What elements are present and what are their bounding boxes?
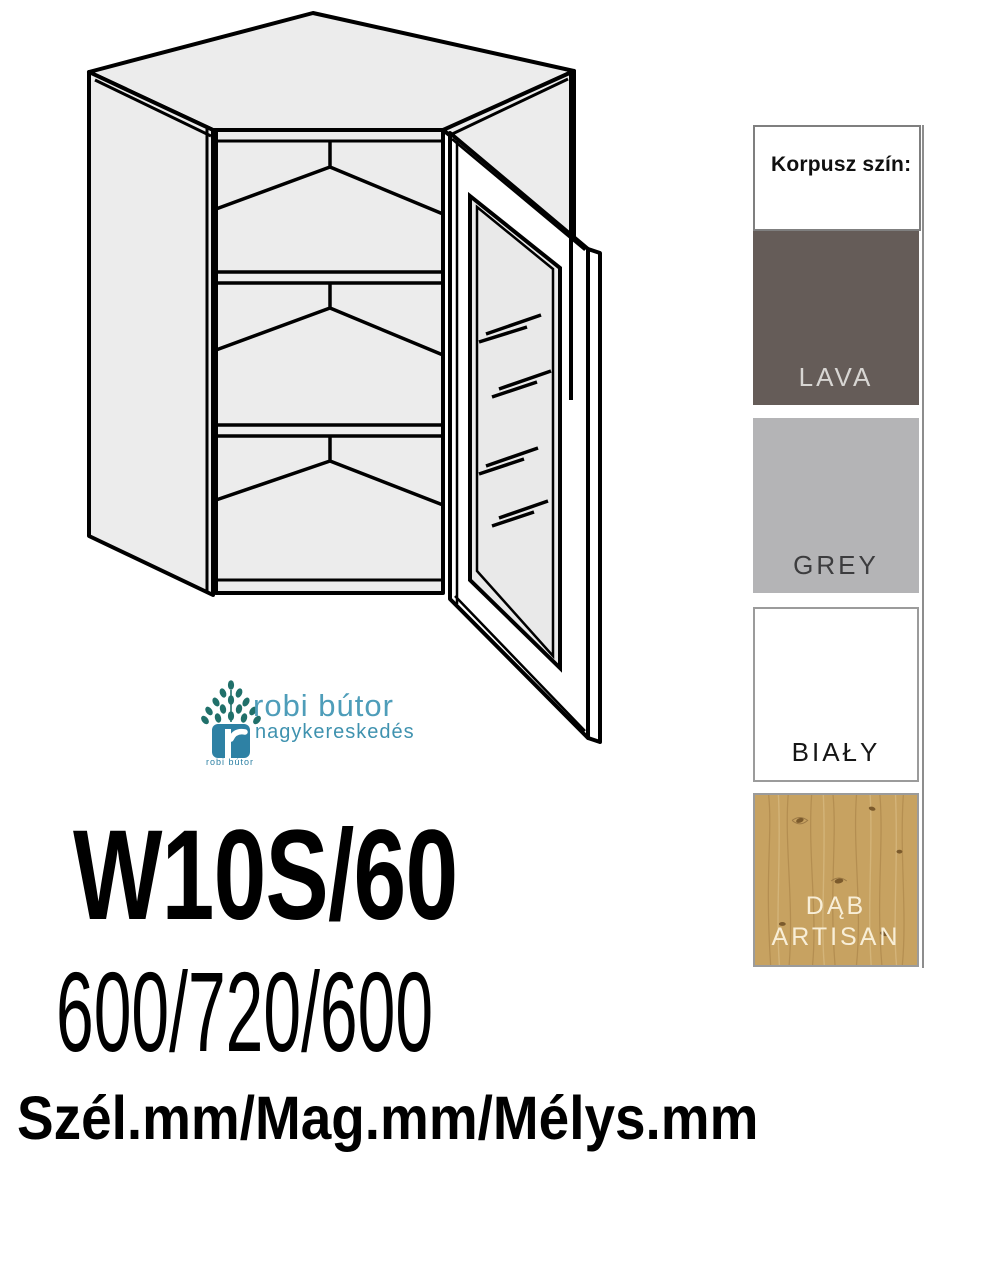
color-option-bialy: BIAŁY <box>753 607 919 782</box>
swatch-label: GREY <box>753 549 919 582</box>
swatch-label: LAVA <box>753 361 919 394</box>
cabinet-left-panel <box>89 72 213 595</box>
product-dimensions: 600/720/600 <box>56 956 433 1069</box>
color-panel-border <box>922 125 924 968</box>
logo-icon-caption: robi bútor <box>206 757 254 766</box>
color-option-dab-artisan: DĄB ARTISAN <box>753 793 919 967</box>
swatch-label: BIAŁY <box>755 736 917 769</box>
color-panel-header-label: Korpusz szín: <box>755 127 919 177</box>
color-panel-header: Korpusz szín: <box>753 125 921 231</box>
logo-name: robi bútor <box>253 690 394 721</box>
swatch-label: DĄB ARTISAN <box>761 891 911 954</box>
color-option-lava: LAVA <box>753 231 919 405</box>
product-code: W10S/60 <box>73 812 457 940</box>
corner-cabinet-drawing-icon <box>0 0 700 790</box>
color-option-grey: GREY <box>753 418 919 593</box>
dimensions-caption: Szél.mm/Mag.mm/Mélys.mm <box>17 1088 758 1149</box>
logo-subtitle: nagykereskedés <box>255 722 415 742</box>
cabinet-diagram <box>0 0 700 790</box>
